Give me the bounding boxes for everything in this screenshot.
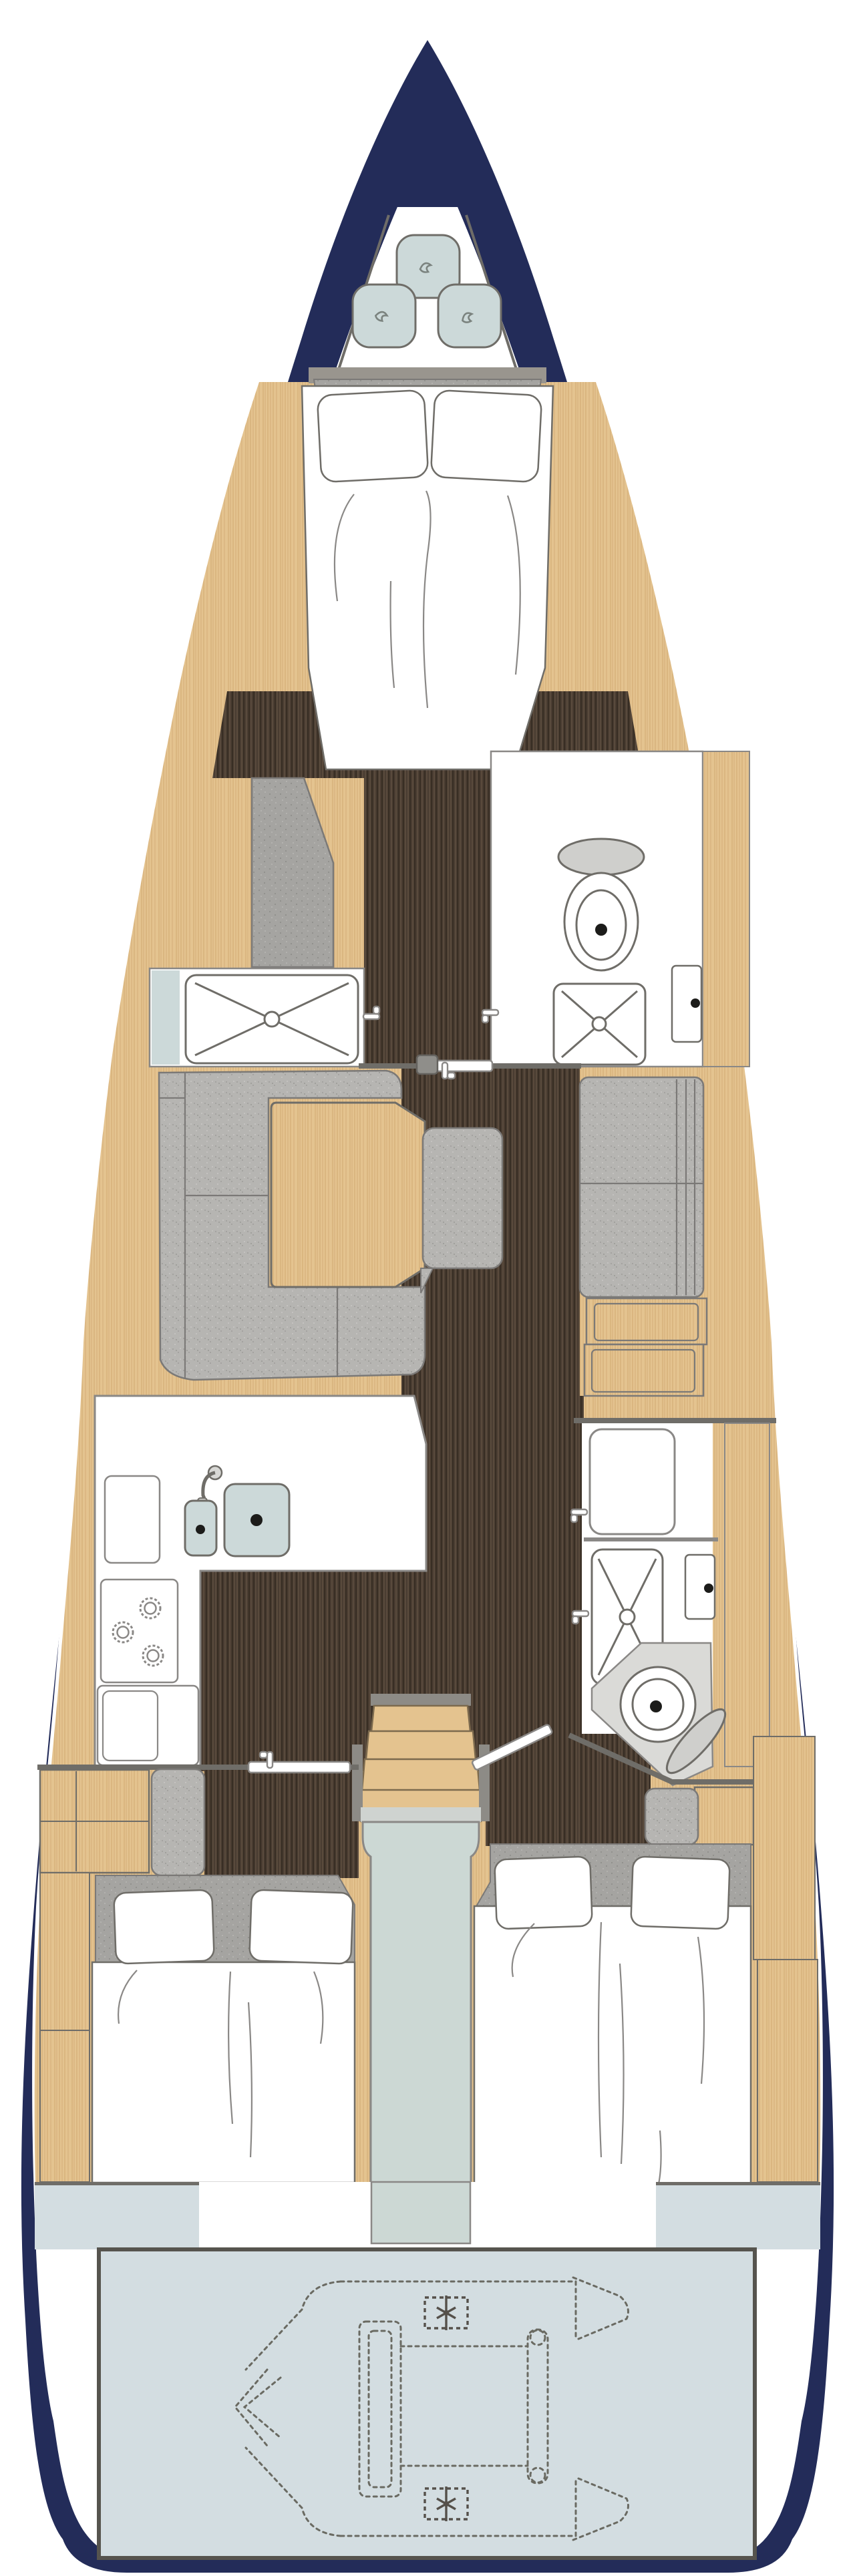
sink-icon (672, 966, 701, 1042)
double-bed (92, 1962, 355, 2183)
landing (361, 1807, 481, 1822)
mast-step (417, 1055, 438, 1074)
head-forward-wall (574, 1418, 776, 1423)
shower-tray (186, 975, 358, 1063)
partition (584, 1537, 718, 1541)
sink-icon (685, 1555, 715, 1619)
galley-lower-locker (98, 1686, 198, 1765)
companionway-steps (361, 1706, 481, 1821)
pillow (114, 1889, 214, 1964)
owner-cabin-forward (302, 379, 553, 769)
yacht-floorplan (0, 0, 855, 2576)
floor-forward-corridor (364, 775, 491, 1069)
aft-head-starboard (571, 1418, 776, 1785)
side-deck-starboard (656, 2182, 820, 2249)
seat-cushion (152, 1769, 204, 1875)
stove (101, 1580, 178, 1682)
seat-cushion (645, 1789, 698, 1845)
toilet-icon (558, 839, 644, 970)
yacht-floorplan-page (0, 0, 855, 2576)
island-seat (421, 1128, 502, 1293)
door-leaf (430, 1061, 492, 1071)
sideboard-shelves (584, 1298, 707, 1396)
fender (353, 285, 415, 347)
worktop-locker (105, 1476, 160, 1563)
settee-starboard (580, 1077, 703, 1297)
pillow (249, 1889, 353, 1964)
pillow (494, 1857, 592, 1929)
dinghy-garage (99, 2249, 755, 2558)
floor-port-cabin-entry (204, 1767, 359, 1878)
companionway (352, 1694, 490, 2241)
pillow (431, 390, 542, 482)
drain (250, 1514, 263, 1526)
stern-garage (35, 2182, 820, 2558)
forward-head-starboard (482, 751, 749, 1067)
engine-box (363, 1822, 479, 2241)
shower-tray (554, 984, 645, 1065)
drain (196, 1525, 205, 1534)
pillow (317, 390, 429, 482)
fender (438, 285, 501, 347)
shower-bench (152, 970, 180, 1065)
companionway-sill (371, 1694, 471, 1706)
head-cabinet (725, 1423, 769, 1767)
engine-box-aft (371, 2182, 470, 2243)
saloon-table (271, 1103, 425, 1287)
door-leaf (248, 1762, 350, 1773)
pillow (631, 1857, 730, 1929)
head-cabinet (703, 751, 749, 1067)
vanity-top (590, 1429, 675, 1534)
side-deck-port (35, 2182, 199, 2249)
